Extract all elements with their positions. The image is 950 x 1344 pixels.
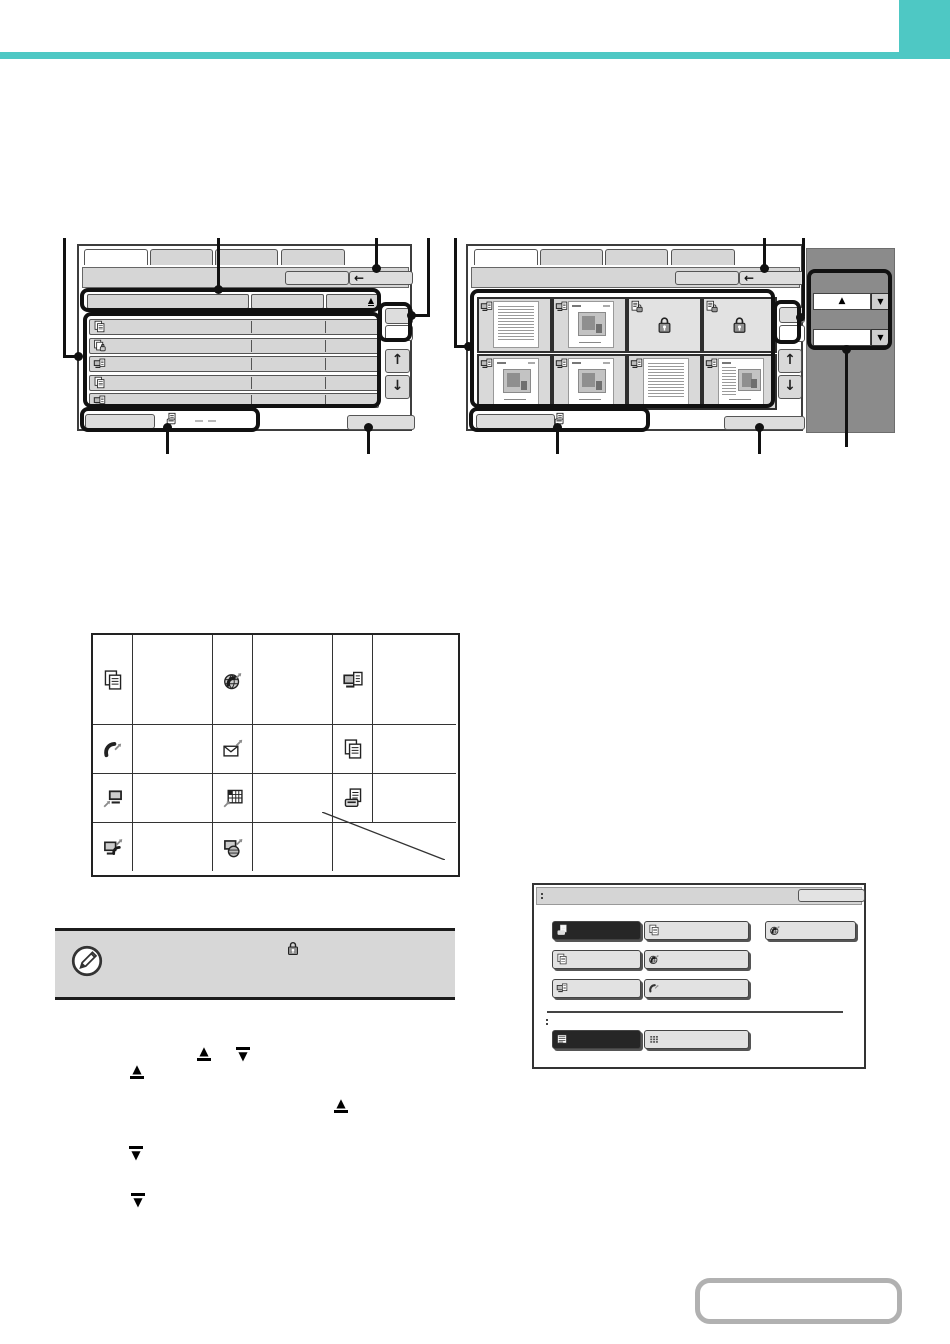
sort-up-inline-icon: ▲ [333, 1098, 349, 1113]
icon-label-cell [373, 635, 456, 725]
confidential-lock-icon [285, 939, 301, 957]
view-button-list[interactable] [552, 1030, 641, 1049]
internet-fax-job-icon [222, 669, 244, 691]
callout-line [217, 238, 220, 287]
callout-line [763, 238, 766, 266]
scroll-down-button[interactable]: ↓ [385, 375, 410, 399]
fax-job-icon [102, 738, 124, 760]
scroll-down-button[interactable]: ↓ [778, 375, 802, 399]
diagonal-strike [322, 812, 445, 860]
page-header-rule [0, 52, 950, 59]
empty-diagonal-cell [333, 823, 456, 871]
dialog-title-bar [536, 887, 862, 905]
copy-icon [556, 953, 568, 965]
callout-line [454, 238, 457, 348]
callout-dot [464, 342, 473, 351]
callout-dot [407, 311, 416, 320]
toolbar-button[interactable] [285, 271, 349, 285]
close-button[interactable] [347, 415, 415, 430]
document-icon [648, 924, 660, 936]
job-button-scan[interactable] [552, 979, 641, 998]
job-icon-table [91, 633, 460, 877]
tab-file-list-4[interactable] [281, 249, 345, 265]
document-print-job-icon [342, 787, 364, 809]
dialog-close-button[interactable] [798, 889, 865, 902]
title-text-remnant [541, 893, 543, 895]
tab-thumbnail-2[interactable] [540, 249, 603, 265]
job-button-document-filing[interactable] [552, 921, 641, 940]
icon-label-cell [133, 635, 213, 725]
document-filing-print-icon [556, 924, 568, 936]
icon-label-cell [133, 823, 213, 871]
section-text-remnant [546, 1019, 548, 1021]
back-arrow-icon: ← [354, 271, 364, 285]
callout-line [556, 431, 559, 454]
sort-down-inline-icon: ▼ [235, 1047, 251, 1062]
copy-job-icon [102, 669, 124, 691]
internet-fax-icon [769, 924, 781, 936]
icon-label-cell [253, 774, 333, 823]
thumbnail-view-icon [648, 1033, 660, 1045]
callout-dot [796, 313, 805, 322]
icon-label-cell [253, 725, 333, 774]
job-button-document[interactable] [644, 921, 749, 940]
manual-page: ← ▲ [0, 0, 950, 1344]
scroll-up-button[interactable]: ↑ [385, 349, 410, 373]
callout-file-rows [83, 312, 381, 408]
down-arrow-icon: ↓ [784, 378, 796, 394]
scan-to-hdd-job-icon [342, 669, 364, 691]
callout-header-row [80, 288, 381, 312]
contents-button[interactable] [695, 1278, 902, 1324]
tab-file-list-1[interactable] [84, 249, 148, 265]
close-button[interactable] [724, 416, 805, 430]
callout-dot [74, 352, 83, 361]
callout-line [166, 431, 169, 454]
pencil-note-icon [71, 945, 103, 977]
back-button[interactable]: ← [739, 271, 805, 285]
sort-up-inline-icon: ▲ [129, 1064, 145, 1079]
scan-icon [556, 982, 568, 994]
job-button-phone-fax[interactable] [644, 979, 749, 998]
tab-thumbnail-4[interactable] [671, 249, 735, 265]
sort-up-inline-icon: ▲ [196, 1046, 212, 1061]
tab-thumbnail-3[interactable] [605, 249, 668, 265]
callout-line [414, 314, 429, 317]
icon-label-cell [133, 725, 213, 774]
tab-file-list-2[interactable] [150, 249, 213, 265]
scan-to-email-job-icon [222, 738, 244, 760]
dialog-divider [547, 1011, 843, 1013]
callout-sort-dropdowns [807, 269, 892, 350]
file-list-toolbar: ← [82, 267, 409, 288]
tab-thumbnail-1[interactable] [474, 249, 538, 265]
up-arrow-icon: ↑ [392, 352, 404, 368]
callout-line [802, 238, 805, 316]
list-view-icon [556, 1033, 568, 1045]
icon-label-cell [253, 635, 333, 725]
view-button-thumbnail[interactable] [644, 1030, 749, 1049]
job-button-copy[interactable] [552, 950, 641, 969]
callout-line [427, 238, 430, 317]
toolbar-button[interactable] [675, 271, 739, 285]
callout-line [63, 238, 66, 357]
list-print-job-icon [222, 787, 244, 809]
up-arrow-icon: ↑ [784, 352, 796, 368]
thumbnail-toolbar: ← [471, 267, 800, 288]
callout-dot [372, 264, 381, 273]
callout-select-buttons [378, 302, 412, 342]
callout-line [367, 431, 370, 454]
callout-dot [760, 264, 769, 273]
icon-label-cell [133, 774, 213, 823]
tab-file-list-3[interactable] [215, 249, 278, 265]
copy-combined-job-icon [342, 738, 364, 760]
phone-fax-icon [648, 982, 660, 994]
down-arrow-icon: ↓ [392, 378, 404, 394]
sort-down-inline-icon: ▼ [130, 1193, 146, 1208]
scroll-up-button[interactable]: ↑ [778, 349, 802, 373]
pc-internet-fax-job-icon [222, 836, 244, 858]
pc-fax-job-icon [102, 836, 124, 858]
callout-line [375, 238, 378, 266]
sort-down-inline-icon: ▼ [128, 1146, 144, 1161]
job-select-dialog [532, 883, 866, 1069]
print-job-icon [102, 787, 124, 809]
callout-line [758, 431, 761, 454]
callout-thumbnail-grid [470, 289, 775, 408]
job-button-internet-fax[interactable] [765, 921, 856, 940]
job-button-fax[interactable] [644, 950, 749, 969]
icon-label-cell [373, 725, 456, 774]
note-box [55, 928, 455, 1000]
back-arrow-icon: ← [744, 271, 754, 285]
callout-line [845, 353, 848, 447]
callout-select-buttons [773, 300, 801, 344]
back-button[interactable]: ← [349, 271, 413, 285]
fax-globe-icon [648, 953, 660, 965]
icon-label-cell [253, 823, 333, 871]
page-corner-tab [899, 0, 950, 59]
callout-dot [214, 285, 223, 294]
